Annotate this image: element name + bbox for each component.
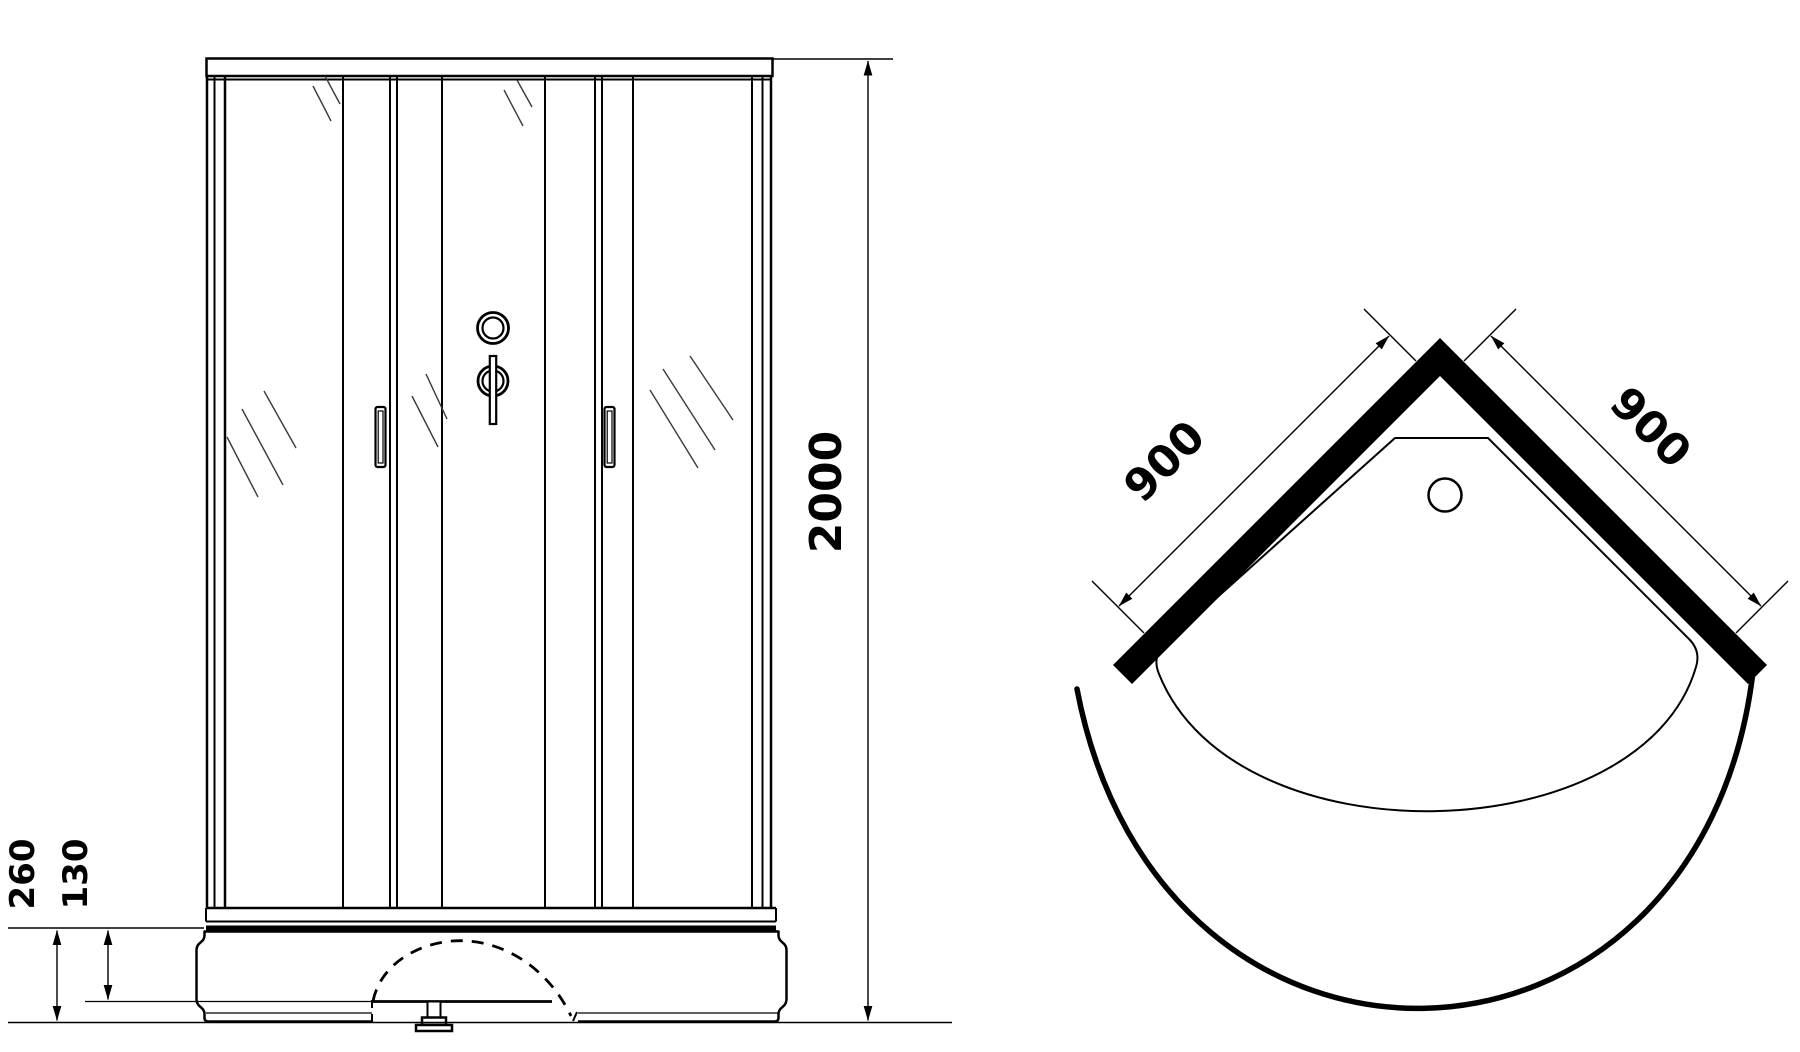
shower-cabin-drawing: 2000 260 130 900 900 [0,0,1800,1052]
tray-front-rim-arc [1077,672,1753,1008]
frame-and-panel-lines [207,76,771,908]
top-rail [207,59,773,77]
drain-access-dashed-dome [373,941,571,1016]
glass-reflection-hatches [227,76,733,497]
left-door-handle [376,407,386,467]
technical-drawing-canvas: 2000 260 130 900 900 [0,0,1800,1052]
drain-trap [416,1002,452,1032]
top-view: 900 900 [1077,309,1788,1008]
dimension-label-base-inner-height: 130 [56,839,96,910]
tray-pan-outline [1156,438,1697,811]
bottom-rail [206,908,776,931]
center-knob-handles [478,313,509,425]
tray-outline [197,932,787,1022]
top-view-dimension-left: 900 [1092,309,1416,633]
drain-hole [1429,479,1462,512]
top-view-dimension-right: 900 [1464,309,1788,633]
dimension-label-side-right: 900 [1600,377,1701,478]
dimension-label-side-left: 900 [1114,411,1215,512]
front-view-dimensions: 2000 260 130 [3,59,893,1021]
dimension-label-base-height: 260 [3,839,43,910]
right-door-handle [605,407,615,467]
dimension-line-side-right [1491,336,1761,606]
shower-tray-front [85,932,787,1032]
dimension-label-height: 2000 [801,431,852,553]
